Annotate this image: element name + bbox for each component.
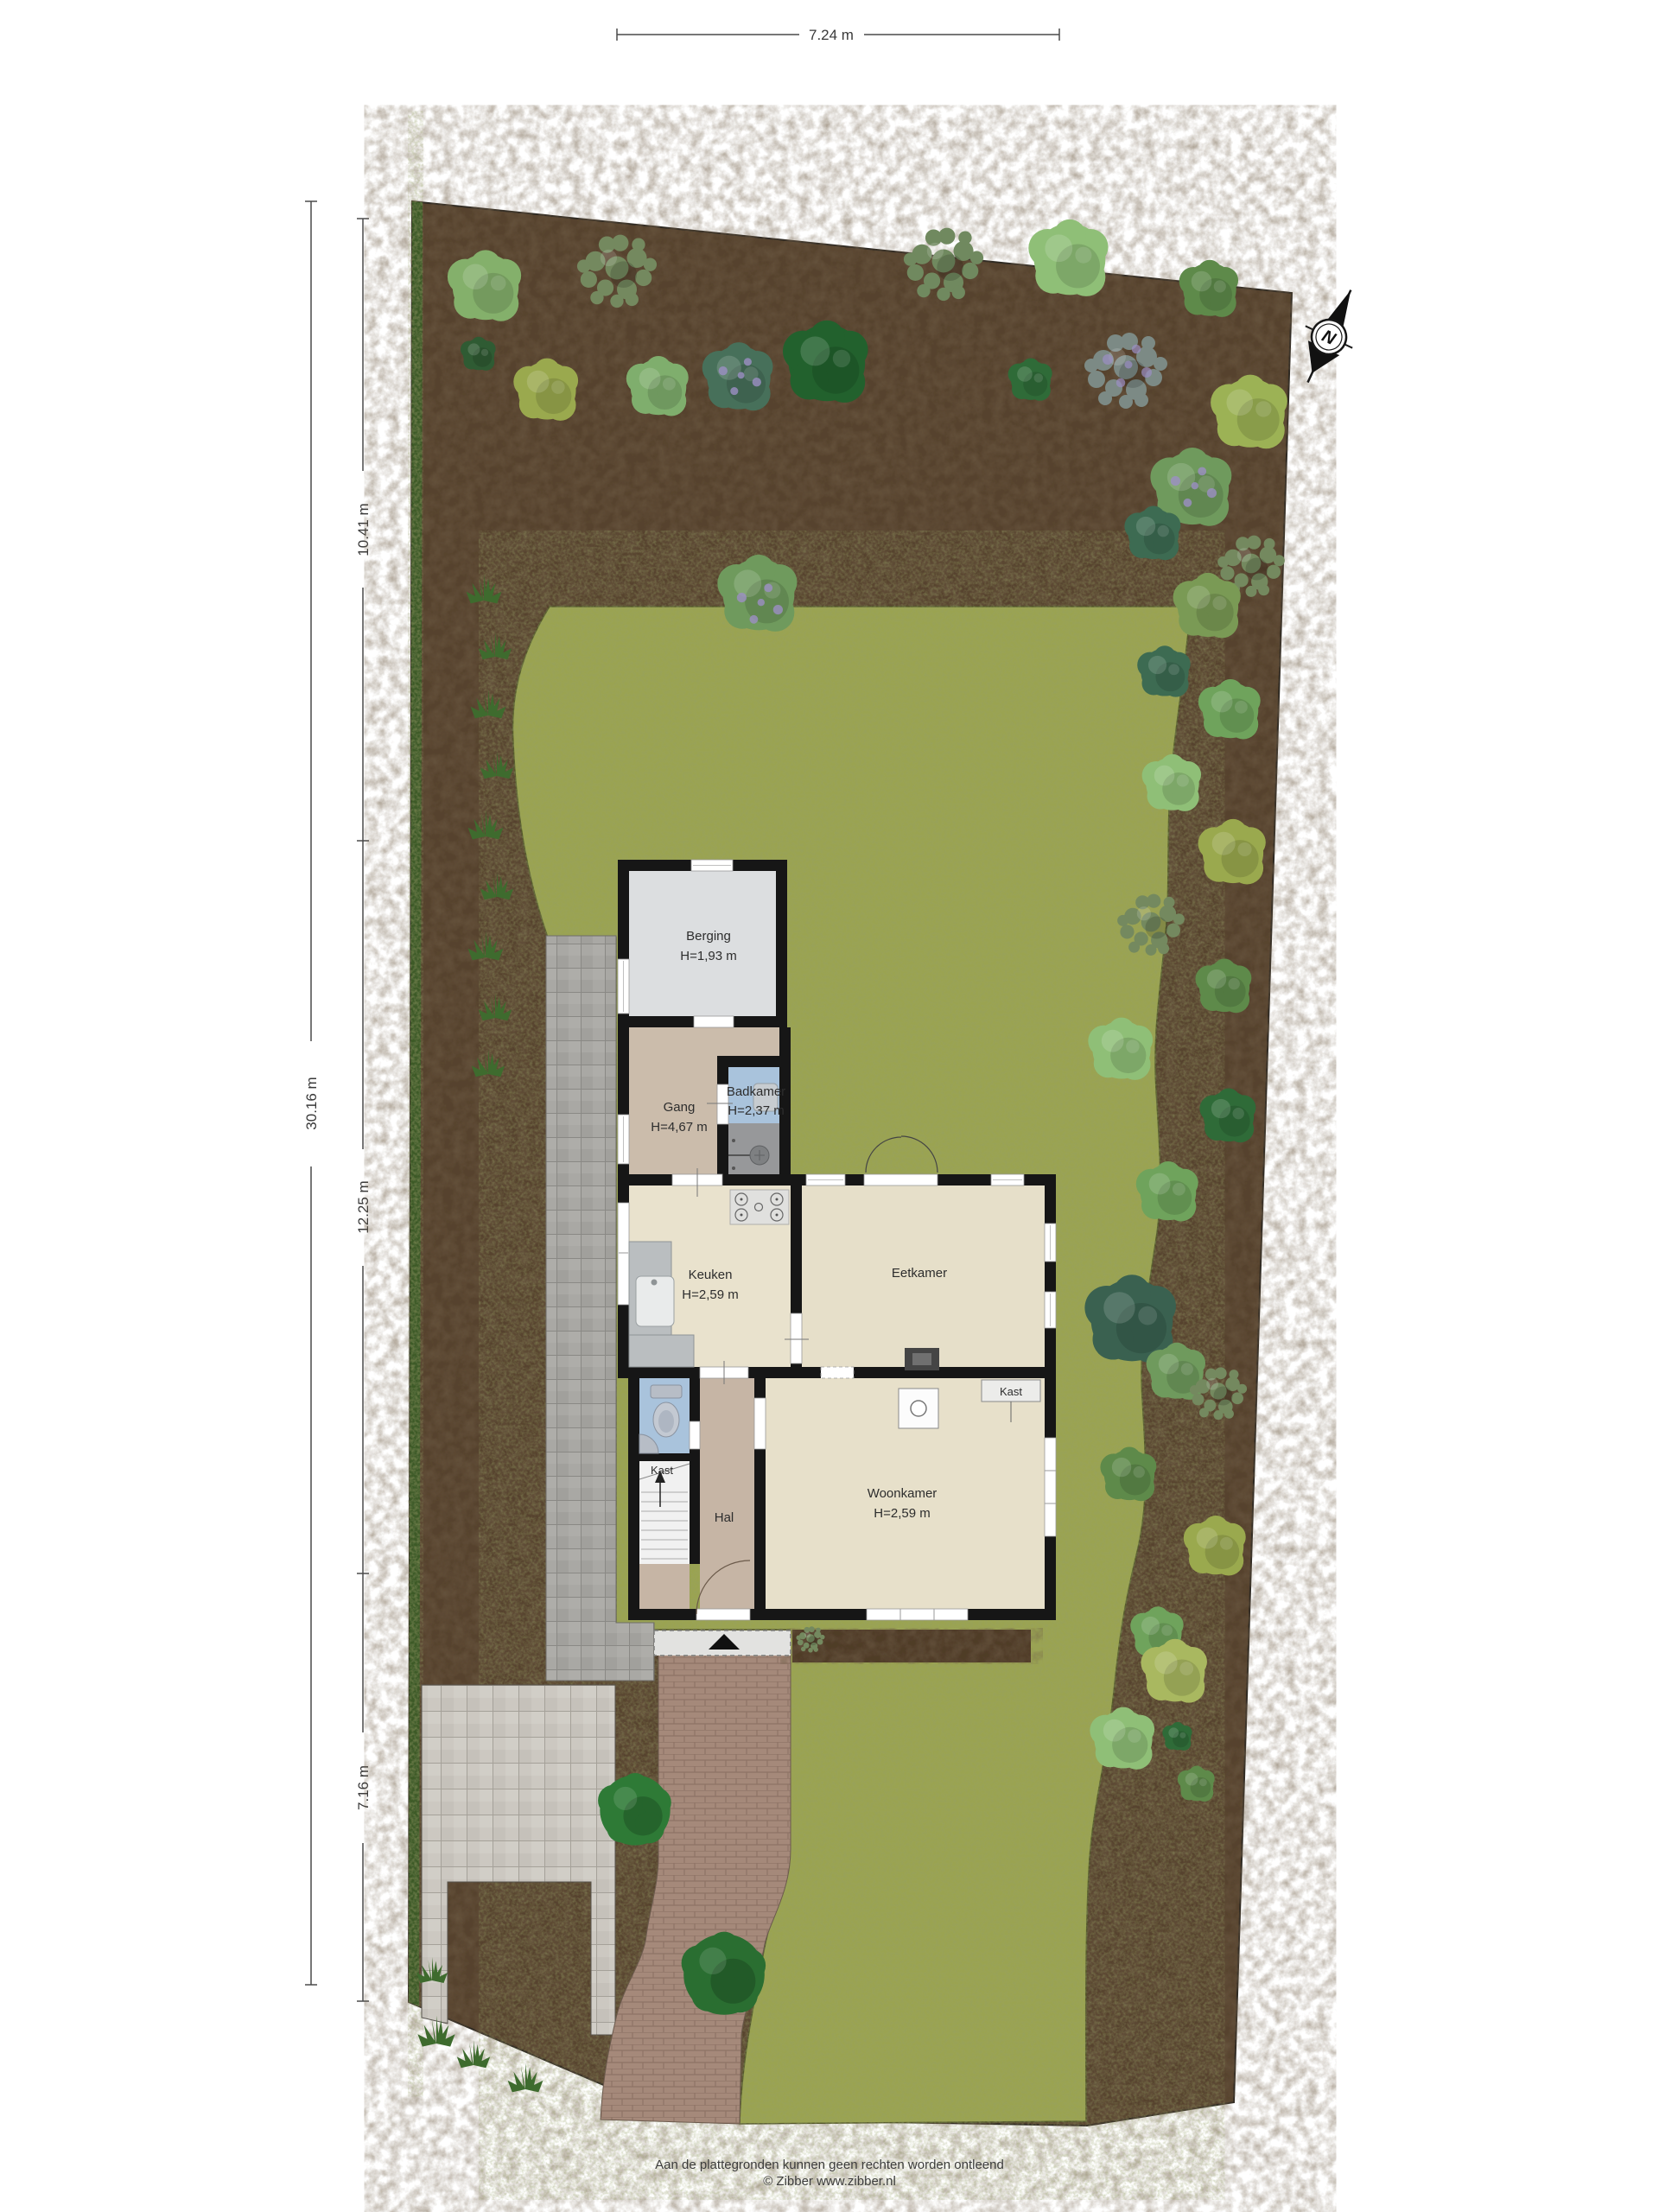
- room-height-keuken: H=2,59 m: [682, 1287, 738, 1302]
- bush: [1090, 1707, 1154, 1770]
- bush: [1173, 573, 1241, 639]
- site-plan-page: 7.24 m 30.16 m 10.41 m 12.25 m 7.16 m: [0, 0, 1659, 2212]
- room-label-woonkamer: Woonkamer: [868, 1486, 938, 1501]
- window: [1045, 1438, 1056, 1536]
- site-plan: 7.24 m 30.16 m 10.41 m 12.25 m 7.16 m: [0, 0, 1659, 2212]
- bush: [1179, 260, 1238, 317]
- room-floor-hal: [700, 1378, 754, 1609]
- window: [691, 860, 733, 871]
- bush: [783, 321, 868, 403]
- room-floor-hal-lower: [639, 1564, 690, 1609]
- bush: [1136, 1161, 1198, 1221]
- room-label-gang: Gang: [664, 1100, 696, 1115]
- window: [991, 1174, 1024, 1185]
- room-label-keuken: Keuken: [689, 1268, 733, 1282]
- door-opening: [694, 1016, 734, 1027]
- bush: [626, 356, 689, 416]
- stove-icon: [730, 1190, 789, 1224]
- room-label-berging: Berging: [686, 929, 731, 944]
- grass-tuft: [508, 2063, 543, 2092]
- window: [806, 1174, 845, 1185]
- bush: [1198, 679, 1261, 739]
- bush: [461, 337, 496, 371]
- room-label-kast-hal: Kast: [651, 1464, 673, 1477]
- bush: [1199, 1089, 1255, 1143]
- dimension-label-left-seg3: 7.16 m: [355, 1765, 372, 1810]
- door-opening: [754, 1398, 766, 1449]
- dimension-label-left-seg1: 10.41 m: [355, 503, 372, 556]
- grass-tuft: [457, 2040, 490, 2068]
- bush: [1198, 819, 1266, 885]
- room-height-badkamer: H=2,37 m: [728, 1103, 784, 1118]
- bush: [1088, 1018, 1153, 1080]
- flower-bed: [792, 1630, 1031, 1662]
- wood-stove-icon: [899, 1389, 938, 1428]
- dimension-label-left-seg2: 12.25 m: [355, 1180, 372, 1233]
- room-label-kast-woonkamer: Kast: [1000, 1385, 1022, 1398]
- bush: [1211, 375, 1287, 449]
- room-height-woonkamer: H=2,59 m: [874, 1506, 930, 1521]
- window: [618, 1203, 629, 1305]
- bush: [1124, 506, 1180, 561]
- dimension-label-top: 7.24 m: [809, 27, 854, 43]
- room-label-hal: Hal: [715, 1510, 734, 1525]
- bush: [1195, 959, 1251, 1014]
- door-opening: [690, 1421, 700, 1449]
- bush: [1008, 358, 1052, 400]
- bush: [513, 359, 578, 421]
- room-label-eetkamer: Eetkamer: [892, 1266, 947, 1281]
- bush: [1178, 1766, 1215, 1802]
- room-height-berging: H=1,93 m: [680, 949, 736, 963]
- compass-rose: N: [1284, 279, 1374, 393]
- window: [1045, 1292, 1056, 1328]
- bush: [1141, 1639, 1207, 1703]
- window: [867, 1609, 968, 1620]
- footer-disclaimer: Aan de plattegronden kunnen geen rechten…: [655, 2158, 1004, 2172]
- bush: [1137, 645, 1190, 696]
- door-opening: [821, 1367, 854, 1378]
- room-height-gang: H=4,67 m: [651, 1120, 707, 1135]
- window: [1045, 1224, 1056, 1262]
- chimney-icon: [905, 1348, 939, 1370]
- bush: [1100, 1447, 1156, 1502]
- bush: [702, 342, 773, 410]
- bush: [1162, 1722, 1192, 1751]
- bush: [448, 250, 521, 321]
- window: [618, 959, 629, 1014]
- window: [618, 1115, 629, 1164]
- dimension-label-left-total: 30.16 m: [303, 1077, 320, 1129]
- room-floor-berging: [629, 871, 776, 1016]
- bush: [1142, 754, 1201, 811]
- bush: [1084, 1274, 1176, 1363]
- room-label-badkamer: Badkamer: [727, 1084, 785, 1099]
- entrance-stoop: [654, 1630, 791, 1656]
- bush: [1028, 219, 1108, 296]
- bush: [1184, 1516, 1246, 1575]
- footer-copyright: © Zibber www.zibber.nl: [763, 2174, 896, 2189]
- dimension-line-left-segments: [357, 219, 369, 2001]
